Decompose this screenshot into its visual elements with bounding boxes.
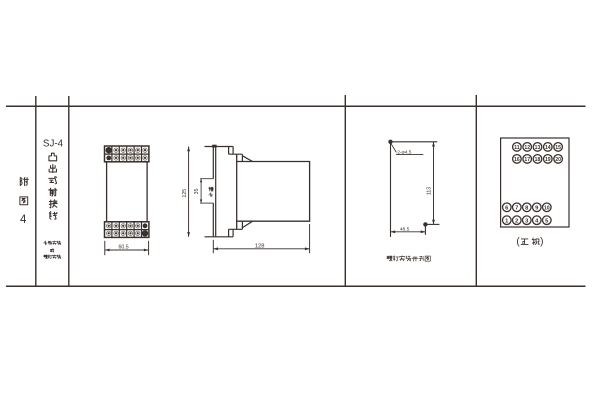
svg-text:15: 15	[555, 145, 561, 151]
svg-text:10: 10	[544, 205, 550, 211]
svg-text:18: 18	[535, 157, 541, 163]
svg-text:13: 13	[535, 145, 541, 151]
svg-text:2-φ4.5: 2-φ4.5	[397, 149, 412, 155]
svg-text:17: 17	[524, 157, 530, 163]
svg-text:14: 14	[545, 145, 551, 151]
svg-text:11: 11	[514, 145, 520, 151]
svg-text:20: 20	[555, 157, 561, 163]
svg-text:125: 125	[182, 189, 188, 198]
svg-text:4: 4	[20, 214, 27, 226]
svg-text:): )	[540, 237, 543, 248]
svg-text:12: 12	[524, 145, 530, 151]
svg-text:60.5: 60.5	[119, 244, 129, 250]
svg-text:19: 19	[545, 157, 551, 163]
svg-text:2: 2	[515, 218, 518, 224]
svg-text:113: 113	[426, 187, 432, 195]
svg-text:16: 16	[514, 157, 520, 163]
svg-text:128: 128	[255, 243, 265, 249]
svg-text:35: 35	[194, 188, 200, 194]
svg-text:(: (	[516, 237, 520, 248]
svg-text:SJ-4: SJ-4	[43, 138, 64, 149]
svg-text:7: 7	[515, 205, 518, 211]
svg-text:48.5: 48.5	[400, 227, 410, 233]
